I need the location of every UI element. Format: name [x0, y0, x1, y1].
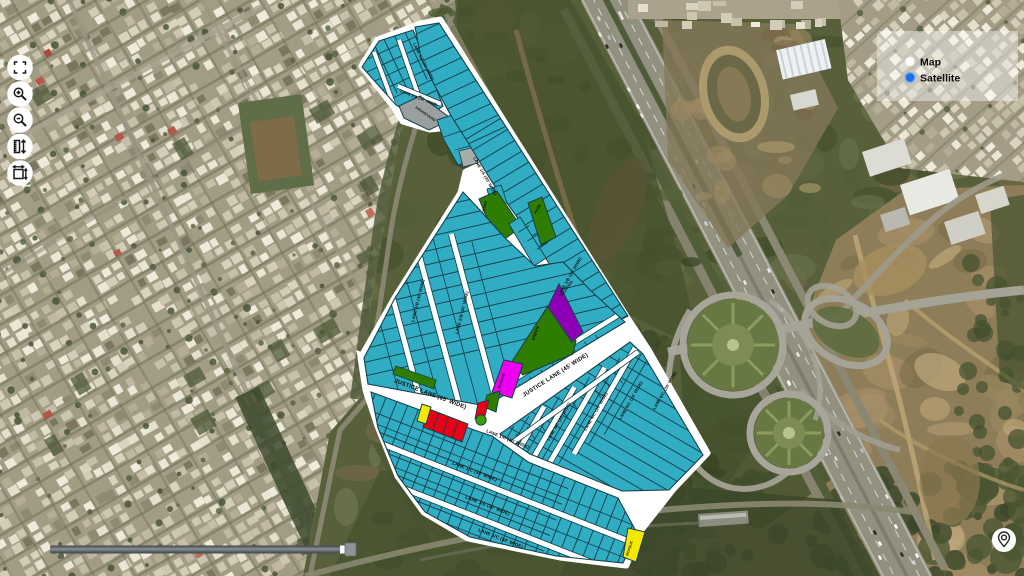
- svg-text:Map: Map: [920, 57, 941, 69]
- svg-text:Satellite: Satellite: [920, 73, 960, 85]
